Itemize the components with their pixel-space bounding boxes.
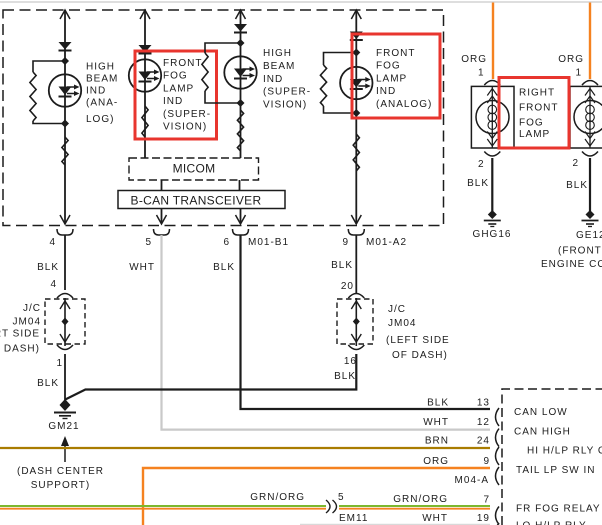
svg-text:CAN HIGH: CAN HIGH [514, 427, 571, 438]
svg-text:EM11: EM11 [339, 513, 368, 524]
svg-text:FR FOG RELAY: FR FOG RELAY [516, 504, 601, 515]
svg-text:1: 1 [478, 68, 485, 79]
svg-text:IND: IND [163, 96, 183, 107]
svg-text:HI H/LP RLY C: HI H/LP RLY C [527, 446, 602, 457]
svg-text:VISION): VISION) [263, 100, 307, 111]
svg-text:1: 1 [575, 68, 582, 79]
svg-text:WHT: WHT [129, 262, 155, 273]
svg-text:HIGH: HIGH [86, 62, 115, 73]
svg-text:FOG: FOG [163, 71, 188, 82]
svg-text:IND: IND [376, 86, 396, 97]
svg-text:2: 2 [478, 159, 485, 170]
svg-text:JM04: JM04 [388, 318, 416, 329]
svg-text:LAMP: LAMP [163, 83, 194, 94]
svg-text:(LEFT SIDE: (LEFT SIDE [386, 335, 450, 346]
svg-text:TAIL LP SW IN: TAIL LP SW IN [516, 465, 596, 476]
svg-text:4: 4 [50, 279, 57, 290]
svg-text:FRONT: FRONT [519, 103, 558, 114]
svg-text:BLK: BLK [213, 262, 235, 273]
svg-text:LAMP: LAMP [376, 73, 407, 84]
svg-text:12: 12 [477, 417, 490, 428]
svg-text:RIGHT: RIGHT [519, 88, 555, 99]
svg-text:GRN/ORG: GRN/ORG [250, 492, 305, 503]
svg-text:(FRONT: (FRONT [558, 246, 602, 257]
svg-text:OF DASH): OF DASH) [392, 350, 448, 361]
svg-text:LO H/LP RLY: LO H/LP RLY [516, 521, 587, 525]
svg-text:J/C: J/C [23, 303, 41, 314]
svg-text:BLK: BLK [467, 178, 489, 189]
svg-text:7: 7 [483, 495, 490, 506]
svg-text:J/C: J/C [388, 304, 406, 315]
svg-text:FRONT: FRONT [163, 58, 202, 69]
svg-text:IND: IND [263, 74, 283, 85]
svg-text:ORG: ORG [461, 54, 487, 65]
svg-text:BEAM: BEAM [86, 74, 118, 85]
svg-text:CAN LOW: CAN LOW [514, 407, 568, 418]
svg-text:9: 9 [483, 456, 490, 467]
svg-text:ORG: ORG [423, 456, 449, 467]
svg-text:BRN: BRN [425, 436, 449, 447]
svg-text:DASH): DASH) [4, 344, 40, 355]
svg-text:20: 20 [341, 281, 354, 292]
svg-text:LAMP: LAMP [519, 129, 550, 140]
svg-text:SUPPORT): SUPPORT) [31, 480, 91, 491]
svg-text:(ANALOG): (ANALOG) [376, 99, 432, 110]
svg-text:LOG): LOG) [86, 114, 114, 125]
svg-text:WHT: WHT [422, 513, 448, 524]
svg-text:(RT SIDE: (RT SIDE [0, 329, 40, 340]
svg-text:WHT: WHT [423, 417, 449, 428]
svg-text:GHG16: GHG16 [473, 229, 512, 240]
svg-text:9: 9 [342, 237, 349, 248]
svg-text:M01-B1: M01-B1 [248, 237, 289, 248]
svg-text:4: 4 [49, 237, 56, 248]
svg-text:B-CAN TRANSCEIVER: B-CAN TRANSCEIVER [131, 194, 262, 208]
svg-text:(DASH CENTER: (DASH CENTER [17, 466, 104, 477]
svg-text:BLK: BLK [566, 180, 588, 191]
svg-text:13: 13 [477, 398, 490, 409]
svg-text:BLK: BLK [331, 260, 353, 271]
svg-text:IND: IND [86, 86, 106, 97]
svg-text:ORG: ORG [558, 54, 584, 65]
svg-text:6: 6 [223, 237, 230, 248]
svg-text:M01-A2: M01-A2 [366, 237, 407, 248]
svg-text:BLK: BLK [427, 398, 449, 409]
svg-text:HIGH: HIGH [263, 48, 292, 59]
svg-text:MICOM: MICOM [173, 162, 216, 176]
svg-text:GRN/ORG: GRN/ORG [393, 494, 448, 505]
svg-text:GM21: GM21 [48, 421, 79, 432]
svg-text:(SUPER-: (SUPER- [263, 87, 311, 98]
svg-text:(ANA-: (ANA- [86, 98, 118, 109]
svg-text:(SUPER-: (SUPER- [163, 109, 211, 120]
svg-text:BEAM: BEAM [263, 61, 295, 72]
svg-text:FOG: FOG [519, 118, 544, 129]
svg-text:GE12: GE12 [576, 230, 602, 241]
svg-text:24: 24 [477, 436, 490, 447]
svg-text:2: 2 [572, 158, 579, 169]
svg-text:FRONT: FRONT [376, 48, 415, 59]
svg-text:M04-A: M04-A [455, 475, 489, 486]
svg-text:ENGINE COM: ENGINE COM [541, 259, 602, 270]
svg-text:19: 19 [477, 513, 490, 524]
svg-text:FOG: FOG [376, 61, 401, 72]
svg-text:BLK: BLK [37, 262, 59, 273]
svg-text:1: 1 [56, 358, 63, 369]
svg-text:16: 16 [344, 356, 357, 367]
svg-text:BLK: BLK [37, 378, 59, 389]
svg-text:5: 5 [145, 237, 152, 248]
svg-text:BLK: BLK [334, 371, 356, 382]
svg-text:JM04: JM04 [13, 317, 41, 328]
svg-text:5: 5 [338, 492, 345, 503]
svg-text:VISION): VISION) [163, 122, 207, 133]
